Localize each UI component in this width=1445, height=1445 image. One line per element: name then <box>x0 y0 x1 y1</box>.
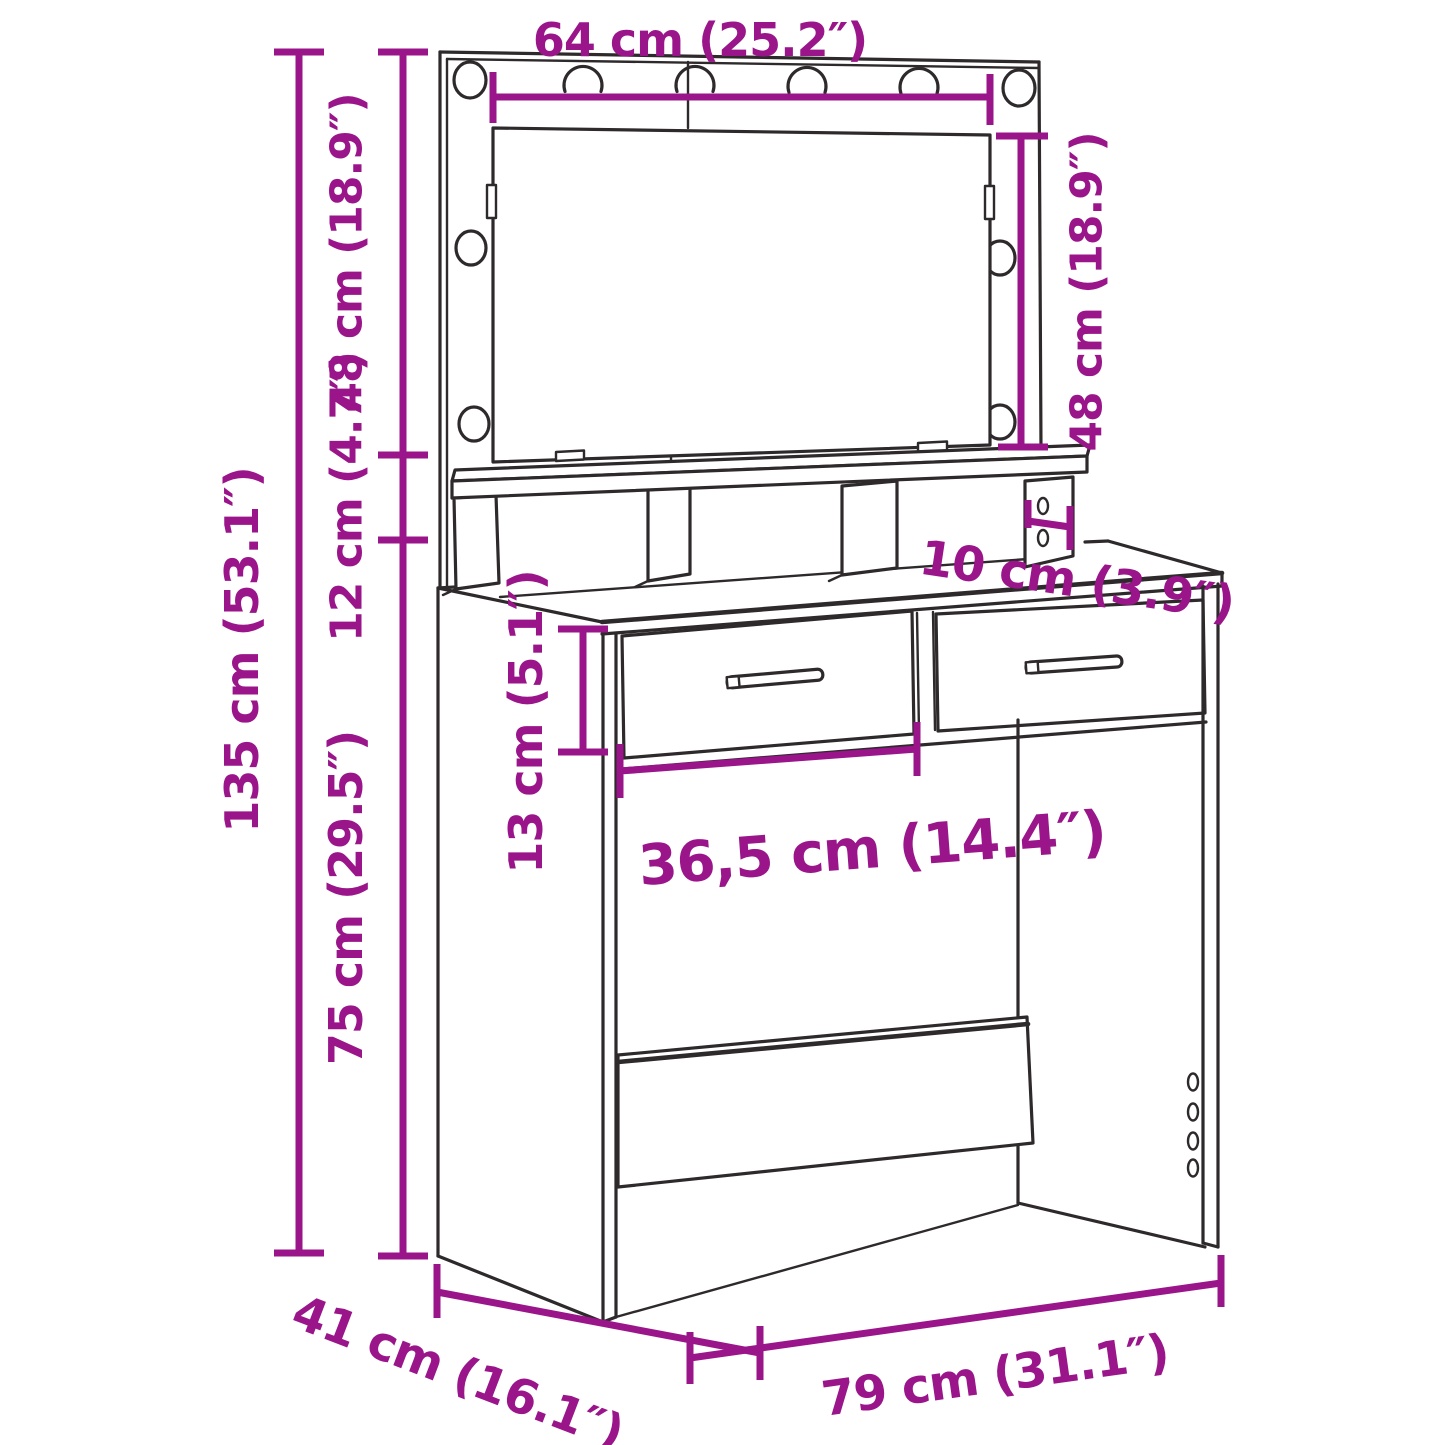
dim-label-mirror-height-right: 48 cm (18.9″) <box>1061 132 1112 451</box>
dimension-mirror-width <box>493 72 990 125</box>
led-bulb-icon <box>900 68 938 93</box>
drawer-handle-right <box>1026 656 1123 674</box>
dimension-drawer-width <box>620 722 917 798</box>
dim-label-hutch-height: 12 cm (4.7″) <box>321 352 372 642</box>
dim-label-total-height: 135 cm (53.1″) <box>215 467 269 832</box>
pin-hole-icon <box>1188 1104 1198 1121</box>
led-bulb-icon <box>456 231 486 265</box>
mirror-hinge-icon <box>985 186 994 219</box>
pin-hole-icon <box>1188 1160 1198 1177</box>
led-bulb-icon <box>1003 70 1035 106</box>
mirror-glass <box>487 128 994 462</box>
dim-label-width: 79 cm (31.1″) <box>818 1324 1172 1428</box>
right-side-panel <box>1018 584 1218 1247</box>
led-bulb-icon <box>459 407 489 441</box>
hutch-divider <box>842 481 897 575</box>
dim-label-drawer-height: 13 cm (5.1″) <box>499 570 553 873</box>
dim-label-drawer-width: 36,5 cm (14.4″) <box>636 799 1108 899</box>
mirror-clip-icon <box>556 451 584 462</box>
pin-hole-icon <box>1188 1074 1198 1091</box>
led-bulb-icon <box>788 67 826 92</box>
drawer-handle-left <box>727 669 824 688</box>
hutch-divider <box>648 486 690 581</box>
diagram-canvas: 64 cm (25.2″) 48 cm (18.9″) 48 cm (18.9″… <box>0 0 1445 1445</box>
dimension-left-segments <box>378 52 428 1256</box>
led-bulb-icon <box>676 66 714 91</box>
furniture-dimension-diagram: 64 cm (25.2″) 48 cm (18.9″) 48 cm (18.9″… <box>0 0 1445 1445</box>
back-crossbar-panel <box>616 1017 1033 1317</box>
led-bulb-icon <box>564 66 602 91</box>
dim-label-table-height: 75 cm (29.5″) <box>319 731 373 1065</box>
hutch-left-support <box>454 495 499 589</box>
dim-label-mirror-width: 64 cm (25.2″) <box>533 13 867 67</box>
dimension-total-height <box>274 52 324 1253</box>
led-bulb-icon <box>454 62 486 98</box>
pin-hole-icon <box>1188 1133 1198 1150</box>
mirror-hinge-icon <box>487 185 496 218</box>
dim-label-hutch-depth: 10 cm (3.9″) <box>916 530 1238 632</box>
dimension-drawer-height <box>558 629 608 752</box>
dim-label-depth: 41 cm (16.1″) <box>285 1284 631 1445</box>
